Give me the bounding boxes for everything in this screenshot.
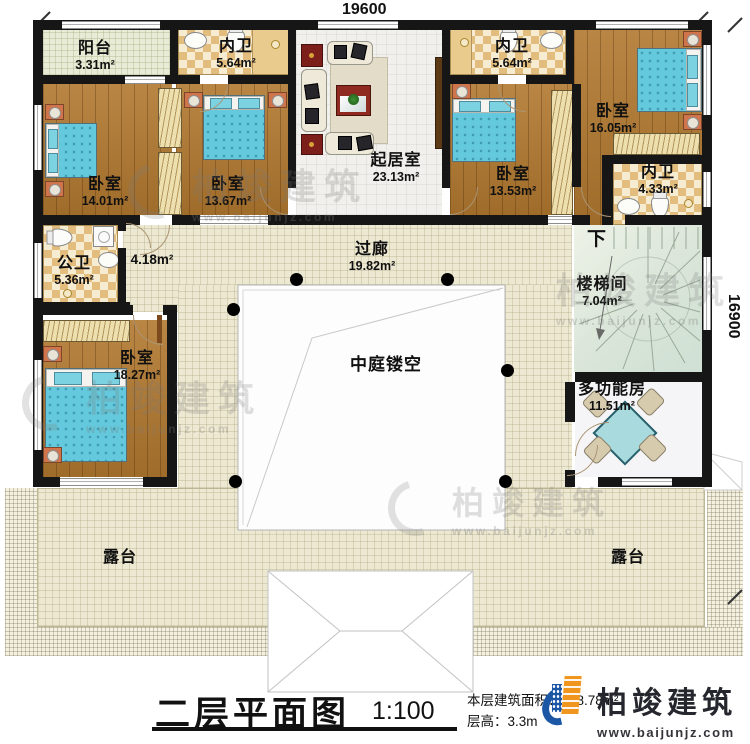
room-label-bedroom-top-right: 卧室16.05m² <box>590 103 637 135</box>
plan-scale: 1:100 <box>372 697 435 726</box>
window <box>318 21 398 29</box>
floor-plan-canvas: 阳台3.31m² 内卫5.64m² 内卫5.64m² 卧室16.05m² 卧室1… <box>0 0 750 744</box>
window <box>60 478 143 486</box>
stair-direction-label: 下 <box>587 229 607 250</box>
window <box>703 257 711 330</box>
window <box>703 172 711 207</box>
room-label-multi-room: 多功能房11.51m² <box>578 381 646 413</box>
window <box>34 105 42 170</box>
window <box>548 216 572 224</box>
wall <box>143 477 177 487</box>
wall <box>442 75 498 84</box>
column-dot <box>227 303 240 316</box>
column-dot <box>499 475 512 488</box>
brand-logo: 柏竣建筑 www.baijunjz.com <box>543 674 737 740</box>
window <box>596 21 688 29</box>
wall <box>565 382 575 422</box>
title-underline <box>152 727 457 731</box>
wall <box>625 215 712 225</box>
atrium-outline <box>238 285 505 530</box>
room-label-balcony: 阳台3.31m² <box>75 40 115 72</box>
hip-roof <box>268 571 473 692</box>
room-label-living-room: 起居室23.13m² <box>370 152 421 184</box>
wall <box>172 215 200 225</box>
room-label-terrace-right: 露台 <box>611 549 645 567</box>
room-label-bedroom-bottom-left: 卧室18.27m² <box>114 350 161 382</box>
window <box>34 243 42 298</box>
column-dot <box>229 475 242 488</box>
room-label-bath-top-right: 内卫5.64m² <box>492 38 532 70</box>
room-label-bedroom-left-1: 卧室14.01m² <box>82 176 129 208</box>
wall <box>33 215 140 225</box>
dimension-right: 16900 <box>724 294 742 339</box>
wall <box>228 75 296 84</box>
column-dot <box>501 364 514 377</box>
dimension-top: 19600 <box>342 1 387 19</box>
window <box>703 45 711 115</box>
room-label-bedroom-left-2: 卧室13.67m² <box>205 176 252 208</box>
window <box>125 76 165 84</box>
room-label-bath-right: 内卫4.33m² <box>638 164 678 196</box>
wall <box>33 305 133 315</box>
wall <box>170 20 178 84</box>
window <box>622 478 672 486</box>
room-label-atrium: 中庭镂空 <box>350 355 422 374</box>
brand-logo-icon <box>543 674 589 734</box>
wall <box>442 84 450 188</box>
room-label-stairwell: 楼梯间7.04m² <box>576 276 627 308</box>
wall <box>288 84 296 188</box>
room-label-corridor: 过廊19.82m² <box>349 241 396 273</box>
brand-name: 柏竣建筑 <box>597 678 737 722</box>
window <box>200 216 268 224</box>
wall <box>566 20 574 84</box>
window <box>34 360 42 450</box>
wall <box>118 248 126 302</box>
wall <box>288 20 296 84</box>
door-leaf <box>157 315 162 343</box>
wall <box>268 215 548 225</box>
column-dot <box>441 273 454 286</box>
room-label-bath-top-left: 内卫5.64m² <box>216 38 256 70</box>
wall <box>602 155 712 164</box>
wall <box>572 215 590 225</box>
room-label-hallway-nook: 4.18m² <box>131 252 174 267</box>
wall <box>167 305 177 477</box>
room-label-public-bath: 公卫5.36m² <box>54 255 94 287</box>
wall <box>442 20 450 84</box>
brand-url: www.baijunjz.com <box>597 725 737 740</box>
wall <box>118 225 126 231</box>
room-label-terrace-left: 露台 <box>103 549 137 567</box>
window <box>62 21 160 29</box>
column-dot <box>290 273 303 286</box>
wall <box>572 84 581 187</box>
room-label-bedroom-center: 卧室13.53m² <box>490 166 537 198</box>
